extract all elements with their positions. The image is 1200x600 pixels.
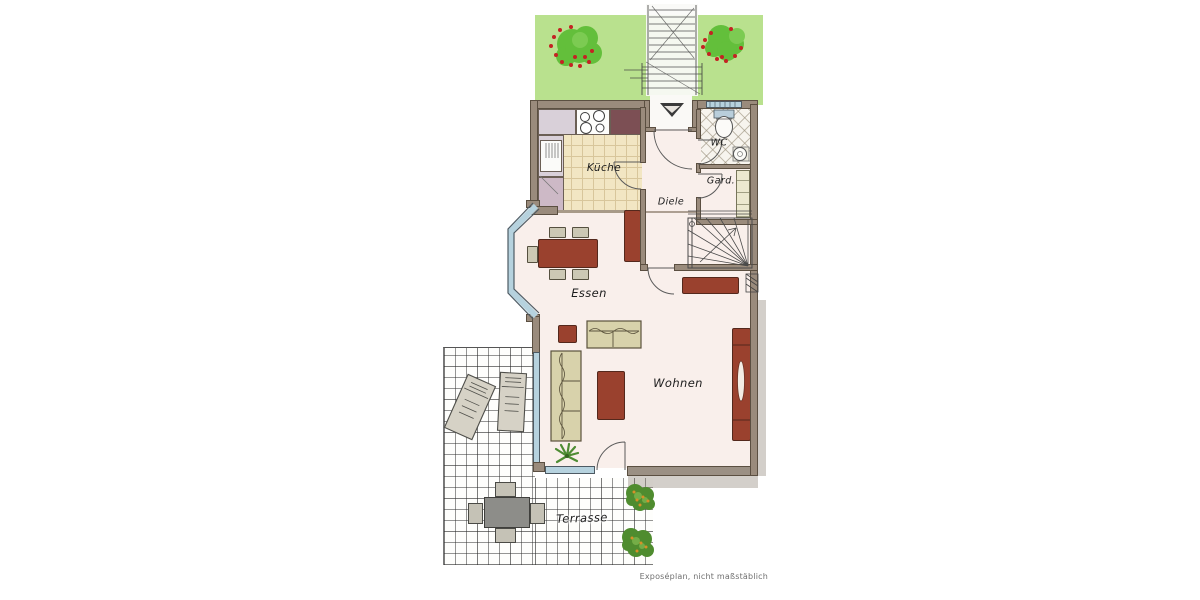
wall-left-mid [532,316,540,354]
coffee-table [597,371,625,420]
wall-top-left [530,100,648,109]
wall-wc-gard-divider [699,164,751,169]
wall-unit [732,328,751,441]
tall-cabinet [624,210,641,262]
sideboard [682,277,739,294]
exterior-stairs-area [646,4,698,96]
entrance-landing [650,95,692,129]
wardrobe [736,170,750,218]
wall-kitchen-diele-top [640,107,646,163]
room-label-diele: Diele [658,197,684,208]
plan-caption: Exposéplan, nicht maßstäblich [640,572,768,581]
stove [576,109,610,135]
wall-diele-bottom-stub [640,264,648,271]
kitchen-sink [540,140,562,172]
wall-shadow-right [758,300,766,476]
room-label-essen: Essen [571,286,607,300]
room-label-terrasse: Terrasse [556,510,608,526]
dining-chair [549,227,566,238]
room-label-wohnen: Wohnen [653,376,703,390]
terrace-chair [468,503,483,524]
terrace-area-left [443,347,535,565]
floorplan-canvas: Küche WC Gard. Diele Essen Wohnen Terras… [0,0,1200,600]
wall-kitchen-bottom [530,206,558,215]
dining-chair [572,269,589,280]
room-label-kueche: Küche [587,162,621,174]
dining-chair [549,269,566,280]
terrace-chair [530,503,545,524]
wall-bottom [627,466,758,476]
wall-shadow-bottom [628,476,758,488]
terrace-table [484,497,530,528]
kitchen-counter-top-left [538,109,576,135]
dining-chair [527,246,538,263]
window-bottom [545,466,595,474]
terrace-chair [495,482,516,497]
side-table [558,325,577,343]
dining-chair [572,227,589,238]
wall-right [750,104,758,476]
wall-left-upper [530,100,538,208]
dining-table [538,239,598,268]
terrace-chair [495,528,516,543]
wall-wc-left-top [696,109,701,139]
wall-gard-bottom [696,219,758,225]
wall-diele-bottom [674,264,758,271]
room-label-wc: WC [711,138,728,149]
wall-corner-bl [533,462,545,472]
wc-floor [701,109,750,164]
window-wc [706,101,742,108]
wall-kitchen-diele-bottom [640,189,646,266]
room-label-garderobe: Gard. [707,176,735,187]
kitchen-counter-top-right [610,109,642,135]
window-left [533,352,540,464]
